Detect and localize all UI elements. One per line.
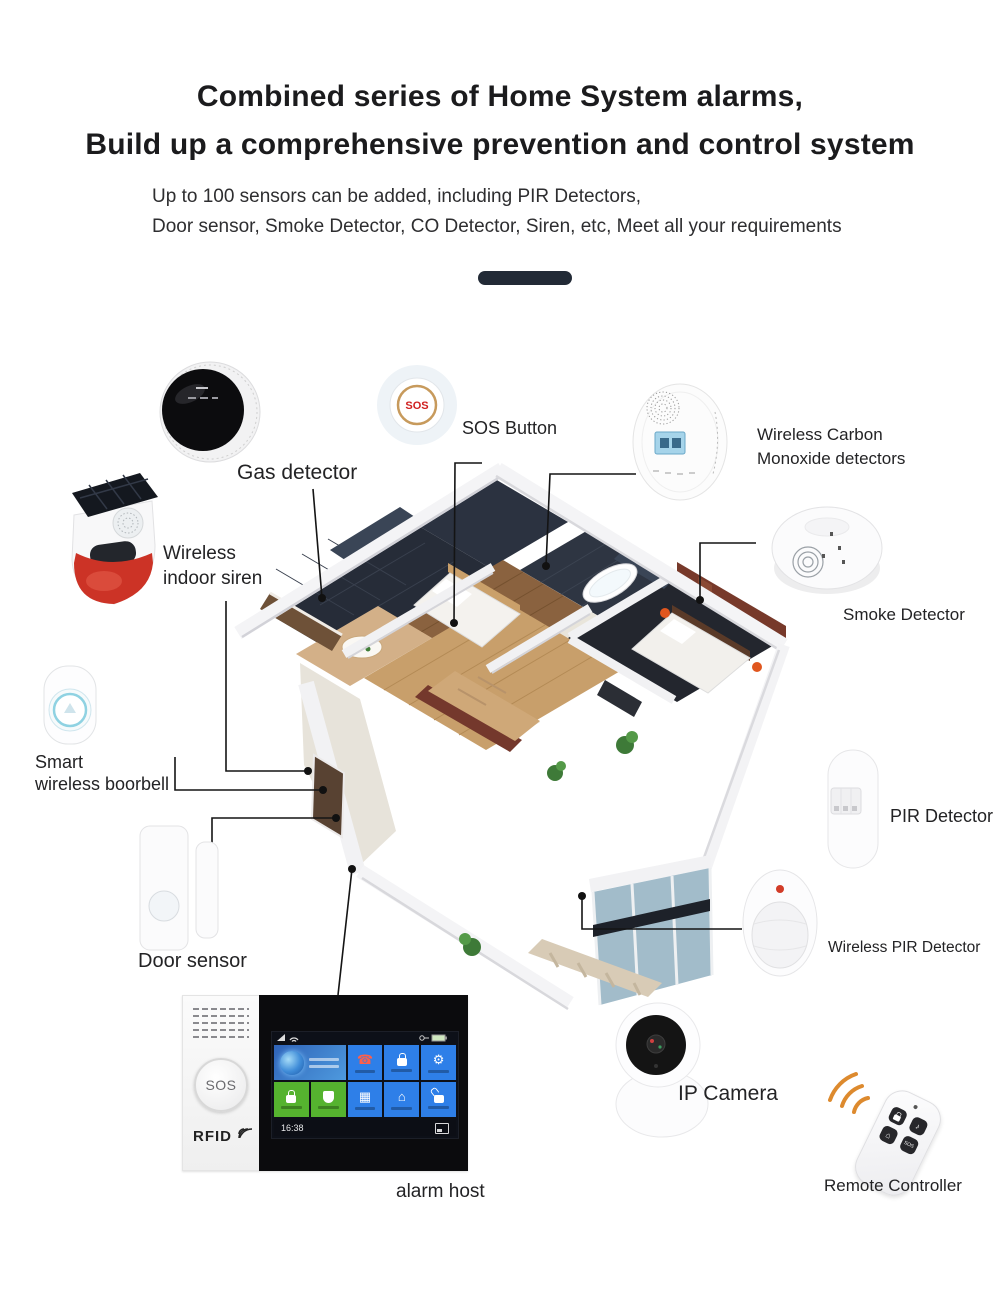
host-tile-globe-icon bbox=[274, 1045, 346, 1080]
house-floorplan-illustration bbox=[210, 455, 810, 1025]
page-title-line1: Combined series of Home System alarms, bbox=[0, 80, 1000, 114]
indoor-siren-label: Wireless indoor siren bbox=[163, 541, 262, 591]
host-tile-lock-icon bbox=[274, 1082, 309, 1117]
subtitle-line1: Up to 100 sensors can be added, includin… bbox=[152, 186, 641, 208]
remote-wifi-waves-icon bbox=[810, 1054, 882, 1126]
indoor-siren-label-line2: indoor siren bbox=[163, 566, 262, 591]
battery-icon bbox=[432, 1035, 445, 1041]
remote-led bbox=[913, 1104, 918, 1109]
key-icon bbox=[420, 1036, 424, 1040]
alarm-host-image: SOS RFID bbox=[182, 995, 468, 1171]
door-sensor-label: Door sensor bbox=[138, 950, 247, 973]
doorbell-label: Smart wireless boorbell bbox=[35, 751, 169, 795]
wireless-pir-image bbox=[740, 866, 825, 980]
sos-button-label: SOS Button bbox=[462, 418, 557, 439]
doorbell-image bbox=[40, 662, 102, 750]
remote-button-lock bbox=[887, 1105, 908, 1126]
door-sensor-image bbox=[138, 820, 224, 956]
host-sos-button: SOS bbox=[194, 1058, 248, 1112]
signal-icon bbox=[277, 1034, 285, 1041]
host-tile-lock-icon bbox=[384, 1045, 419, 1080]
host-tile-home-icon: ⌂ bbox=[384, 1082, 419, 1117]
co-detector-image bbox=[625, 380, 735, 505]
co-detector-label-line2: Monoxide detectors bbox=[757, 447, 905, 471]
indoor-siren-image bbox=[52, 465, 170, 610]
subtitle-line2: Door sensor, Smoke Detector, CO Detector… bbox=[152, 216, 842, 238]
remote-buttons: ♪⌂SOS bbox=[878, 1105, 930, 1156]
alarm-host-screen: ☎⚙▦⌂ 16:38 bbox=[271, 1031, 459, 1139]
page: Combined series of Home System alarms, B… bbox=[0, 0, 1000, 1293]
wifi-icon bbox=[290, 1038, 298, 1042]
remote-controller-label: Remote Controller bbox=[824, 1176, 962, 1196]
host-tile-phone-icon: ☎ bbox=[348, 1045, 383, 1080]
remote-button-sos: SOS bbox=[898, 1134, 919, 1155]
globe-icon bbox=[280, 1051, 304, 1075]
gas-detector-label: Gas detector bbox=[237, 461, 357, 485]
host-tile-photo-icon: ▦ bbox=[348, 1082, 383, 1117]
smoke-detector-image bbox=[770, 496, 885, 608]
alarm-host-screen-bezel: ☎⚙▦⌂ 16:38 bbox=[259, 995, 468, 1171]
screen-cast-icon bbox=[435, 1123, 449, 1134]
co-detector-label: Wireless Carbon Monoxide detectors bbox=[757, 423, 905, 471]
screen-status-bar bbox=[272, 1032, 458, 1044]
ip-camera-label: IP Camera bbox=[678, 1082, 778, 1106]
smoke-detector-label: Smoke Detector bbox=[843, 605, 965, 625]
host-tile-shield-icon bbox=[311, 1082, 346, 1117]
host-tile-gear-icon: ⚙ bbox=[421, 1045, 456, 1080]
doorbell-label-line2: wireless boorbell bbox=[35, 773, 169, 795]
screen-time: 16:38 bbox=[281, 1123, 304, 1133]
screen-bottom-bar: 16:38 bbox=[274, 1120, 456, 1136]
gas-detector-image bbox=[148, 360, 268, 466]
svg-text:SOS: SOS bbox=[405, 400, 428, 412]
doorbell-label-line1: Smart bbox=[35, 751, 169, 773]
speaker-grille-icon bbox=[193, 1006, 249, 1048]
host-rfid-label: RFID bbox=[193, 1128, 232, 1145]
alarm-host-left-panel: SOS RFID bbox=[182, 995, 259, 1171]
sos-button-image: SOS bbox=[372, 362, 462, 448]
wireless-pir-label: Wireless PIR Detector bbox=[828, 939, 980, 957]
host-tile-unlock-icon bbox=[421, 1082, 456, 1117]
pir-detector-label: PIR Detector bbox=[890, 806, 993, 827]
alarm-host-label: alarm host bbox=[396, 1181, 485, 1203]
remote-button-home: ⌂ bbox=[878, 1124, 899, 1145]
remote-button-bell: ♪ bbox=[907, 1115, 928, 1136]
ip-camera-image bbox=[592, 1000, 742, 1140]
page-title-line2: Build up a comprehensive prevention and … bbox=[0, 128, 1000, 162]
indoor-siren-label-line1: Wireless bbox=[163, 541, 262, 566]
divider-bar bbox=[478, 271, 572, 285]
co-detector-label-line1: Wireless Carbon bbox=[757, 423, 905, 447]
rfid-waves-icon bbox=[235, 1120, 255, 1138]
screen-tile-grid: ☎⚙▦⌂ bbox=[274, 1045, 456, 1117]
pir-detector-image bbox=[822, 748, 884, 872]
